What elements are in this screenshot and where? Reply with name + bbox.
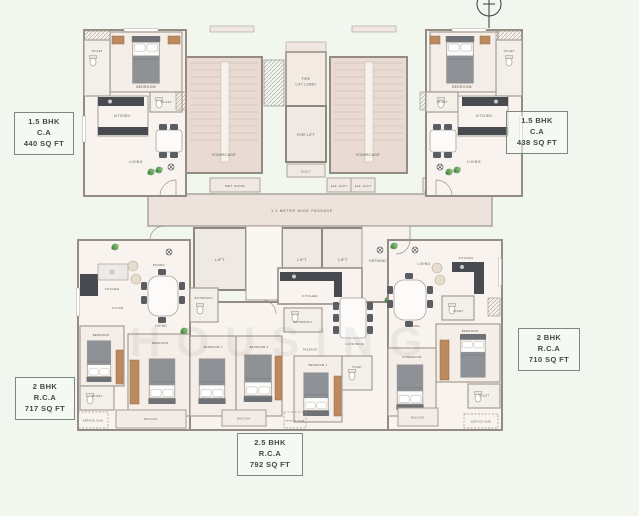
- kitchen-counter: [280, 272, 342, 281]
- room-label-foyer: FOYER: [112, 306, 123, 310]
- ledge: [286, 42, 326, 52]
- room-label-toilet: TOILET: [91, 49, 103, 53]
- room-label-bathroom-2: BATHROOM 2: [195, 297, 214, 300]
- lift-label: LIFT: [297, 257, 307, 262]
- wc-fixture: [348, 370, 355, 381]
- armchair: [432, 263, 442, 273]
- bed: [396, 365, 423, 410]
- unit-top-left-plan: BEDROOM TOILET TOILET KITCHEN LIVING: [83, 29, 187, 197]
- window: [124, 29, 158, 32]
- fire-lift-lobby-label-2: LIFT LOBBY: [295, 83, 317, 87]
- bathroom-1: [284, 308, 322, 332]
- balcony-label: BALCONY: [411, 417, 425, 420]
- bed: [198, 359, 225, 404]
- unit-area: 438 SQ FT: [509, 138, 565, 149]
- service-slab-label: SERVICE SLAB: [471, 421, 491, 424]
- unit-label-bottom-right: 2 BHK R.C.A 710 SQ FT: [518, 328, 580, 371]
- room-label-bedroom: BEDROOM: [462, 329, 479, 333]
- duct-shaft: [420, 92, 426, 110]
- unit-bottom-left-plan: DINING LIVING FOYER KITCHEN BEDROOM BEDR…: [77, 226, 191, 430]
- side-table: [430, 36, 440, 44]
- dining-set: [333, 298, 373, 338]
- room-label-toilet: TOILET: [503, 49, 515, 53]
- bed: [132, 36, 160, 83]
- unit-area: 710 SQ FT: [521, 355, 577, 366]
- north-compass-icon: [477, 0, 501, 28]
- sink: [292, 275, 296, 279]
- room-label-toilet: TOILET: [92, 394, 103, 398]
- armchair: [131, 274, 141, 284]
- bed: [148, 359, 175, 404]
- kitchen-counter: [452, 262, 484, 272]
- room-label-bathroom-1: BATHROOM 1: [293, 321, 313, 324]
- floorplan-drawing: STAIRCASE STAIRCASE FIRE LIFT LOBBY: [0, 0, 639, 516]
- lift-label: LIFT: [338, 257, 348, 262]
- unit-bhk: 2 BHK: [18, 382, 72, 393]
- kitchen-counter: [458, 127, 508, 135]
- room-label-living: LIVING: [418, 262, 431, 266]
- room-label-toilet: TOILET: [479, 394, 490, 398]
- ledge: [210, 26, 254, 32]
- staircase-right-label: STAIRCASE: [356, 153, 380, 157]
- bed: [460, 334, 486, 377]
- armchair: [128, 261, 138, 271]
- kitchen-counter: [462, 97, 508, 106]
- room-label-bedroom: BEDROOM: [152, 341, 169, 345]
- wardrobe: [334, 376, 341, 416]
- staircase-right: STAIRCASE: [330, 57, 407, 173]
- room-label-living: LIVING: [467, 160, 481, 164]
- fire-lift-label: FIRE LIFT: [297, 133, 315, 137]
- bathroom-2: [190, 288, 218, 322]
- unit-label-bottom-middle: 2.5 BHK R.C.A 792 SQ FT: [237, 433, 303, 476]
- unit-basis: R.C.A: [521, 344, 577, 355]
- room-label-kitchen: KITCHEN: [476, 114, 492, 118]
- unit-area: 792 SQ FT: [240, 460, 300, 471]
- duct-shaft: [488, 298, 500, 316]
- ele-duct-label: ELE. DUCT: [331, 184, 347, 188]
- service-slab-label: SERVICE SLAB: [83, 420, 103, 423]
- balcony-label: BALCONY: [237, 418, 251, 421]
- ele-duct-label: ELE. DUCT: [355, 184, 371, 188]
- room-label-passage: PASSAGE: [303, 348, 317, 352]
- staircase-left: STAIRCASE: [186, 57, 262, 173]
- bed: [244, 355, 272, 402]
- room-label-kitchen: KITCHEN: [114, 114, 130, 118]
- unit-label-top-right: 1.5 BHK C.A 438 SQ FT: [506, 111, 568, 154]
- room-label-toilet: TOILET: [452, 309, 463, 313]
- column-marker: [377, 247, 383, 253]
- bed: [303, 373, 329, 416]
- balcony-label: BALCONY: [144, 418, 158, 421]
- meter-room-label: MET. ROOM: [225, 184, 245, 188]
- kitchen-counter: [474, 272, 484, 294]
- door-arc: [150, 226, 164, 240]
- side-table: [168, 36, 180, 44]
- bed: [87, 341, 112, 382]
- toilet: [442, 296, 474, 320]
- column-marker: [168, 164, 174, 170]
- duct-shaft: [176, 92, 186, 110]
- service-slab-label: SERVICE SLAB: [285, 420, 305, 423]
- room-label-dining: DINING: [153, 263, 166, 267]
- room-label-bedroom-3: BEDROOM 3: [250, 345, 269, 349]
- kitchen-counter: [98, 127, 148, 135]
- sink: [109, 269, 114, 274]
- meter-room: MET. ROOM: [210, 178, 260, 192]
- room-label-bedroom: BEDROOM: [136, 85, 156, 89]
- room-label-bedroom: BEDROOM: [93, 333, 110, 337]
- wc-fixture: [196, 304, 203, 315]
- duct-box: DUCT: [287, 164, 325, 177]
- bed: [446, 36, 474, 83]
- unit-bottom-right-plan: LIVING DINING KITCHEN TOILET BEDROOM M.B…: [377, 240, 502, 430]
- room-label-kitchen: KITCHEN: [105, 287, 119, 291]
- kitchen-counter: [334, 281, 342, 297]
- unit-bhk: 2 BHK: [521, 333, 577, 344]
- column-marker: [412, 247, 418, 253]
- unit-bhk: 1.5 BHK: [17, 117, 71, 128]
- toilet: [342, 356, 372, 390]
- fire-lift-lobby: FIRE LIFT LOBBY: [286, 52, 326, 106]
- room-label-living: LIVING: [129, 160, 143, 164]
- room-label-dining: DINING: [408, 324, 421, 328]
- passage-label: 1.2 METER WIDE PASSAGE: [271, 209, 333, 213]
- window: [452, 29, 486, 32]
- room-label-m-bedroom: M.BEDROOM: [403, 355, 422, 359]
- fire-lift-lobby-label-1: FIRE: [302, 77, 310, 81]
- room-label-toilet: TOILET: [160, 100, 172, 104]
- unit-bhk: 1.5 BHK: [509, 116, 565, 127]
- duct-shaft: [264, 60, 284, 106]
- room-label-living: LIVING: [155, 324, 167, 328]
- sink: [494, 100, 498, 104]
- duct-shaft: [84, 31, 110, 40]
- toilet: [80, 386, 114, 410]
- window: [77, 288, 80, 316]
- column-marker: [166, 249, 172, 255]
- room-label-bedroom: BEDROOM: [452, 85, 472, 89]
- wardrobe: [116, 350, 123, 384]
- kitchen-counter: [98, 97, 144, 106]
- unit-basis: C.A: [509, 127, 565, 138]
- unit-bhk: 2.5 BHK: [240, 438, 300, 449]
- floorplan-page: STAIRCASE STAIRCASE FIRE LIFT LOBBY: [0, 0, 639, 516]
- room-label-kitchen: KITCHEN: [459, 256, 473, 260]
- window: [83, 116, 86, 142]
- room-label-kitchen: KITCHEN: [302, 294, 317, 298]
- unit-area: 440 SQ FT: [17, 139, 71, 150]
- room-label-toilet: TOILET: [352, 366, 362, 369]
- sink: [460, 265, 464, 269]
- fire-lift: FIRE LIFT: [286, 106, 326, 162]
- wardrobe: [275, 356, 282, 400]
- room-label-bedroom-1: BEDROOM 1: [309, 363, 328, 367]
- wardrobe: [440, 340, 449, 380]
- room-label-bedroom-2: BEDROOM 2: [204, 345, 223, 349]
- unit-label-top-left: 1.5 BHK C.A 440 SQ FT: [14, 112, 74, 155]
- unit-basis: R.C.A: [18, 393, 72, 404]
- room-label-liv-dining: LIV/DINING: [346, 342, 365, 346]
- unit-area: 717 SQ FT: [18, 404, 72, 415]
- wc-fixture: [505, 56, 512, 67]
- ledge: [352, 26, 396, 32]
- sink: [108, 100, 112, 104]
- unit-basis: R.C.A: [240, 449, 300, 460]
- staircase-left-label: STAIRCASE: [212, 153, 236, 157]
- lift-label: LIFT: [215, 257, 225, 262]
- lift-lobby-hall: [246, 226, 282, 300]
- column-marker: [437, 164, 443, 170]
- window: [499, 258, 502, 286]
- duct-shaft: [496, 31, 522, 40]
- duct-label: DUCT: [301, 170, 311, 174]
- side-table: [480, 36, 490, 44]
- unit-basis: C.A: [17, 128, 71, 139]
- armchair: [435, 275, 445, 285]
- wc-fixture: [89, 56, 96, 67]
- side-table: [112, 36, 124, 44]
- room-label-toilet: TOILET: [436, 100, 448, 104]
- unit-label-bottom-left: 2 BHK R.C.A 717 SQ FT: [15, 377, 75, 420]
- kitchen-counter: [80, 274, 98, 296]
- wardrobe: [130, 360, 139, 404]
